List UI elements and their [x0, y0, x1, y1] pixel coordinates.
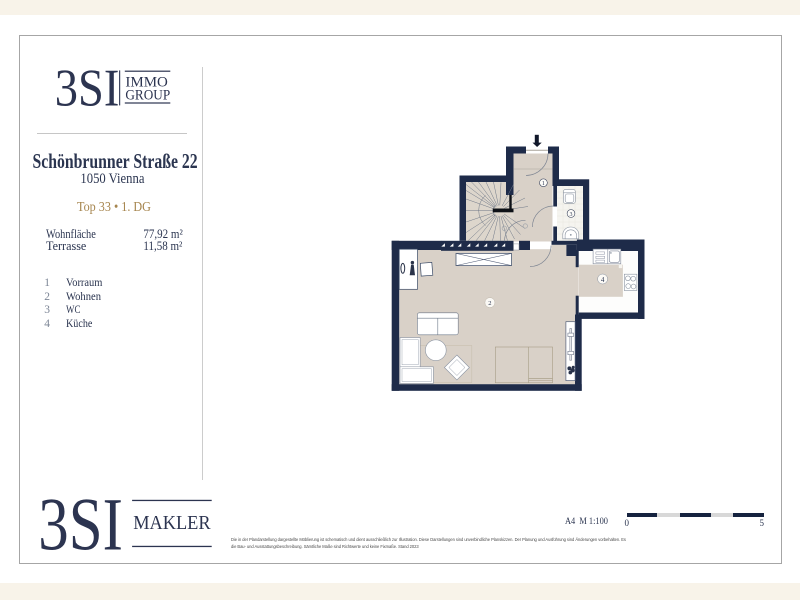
svg-text:1: 1 — [542, 181, 545, 187]
svg-text:3: 3 — [570, 212, 573, 218]
svg-text:3SI: 3SI — [38, 494, 123, 554]
svg-text:3SI: 3SI — [55, 59, 120, 115]
svg-text:2: 2 — [488, 300, 491, 307]
svg-text:4: 4 — [601, 276, 605, 284]
svg-text:GROUP: GROUP — [125, 88, 170, 104]
svg-text:MAKLER: MAKLER — [133, 512, 211, 534]
